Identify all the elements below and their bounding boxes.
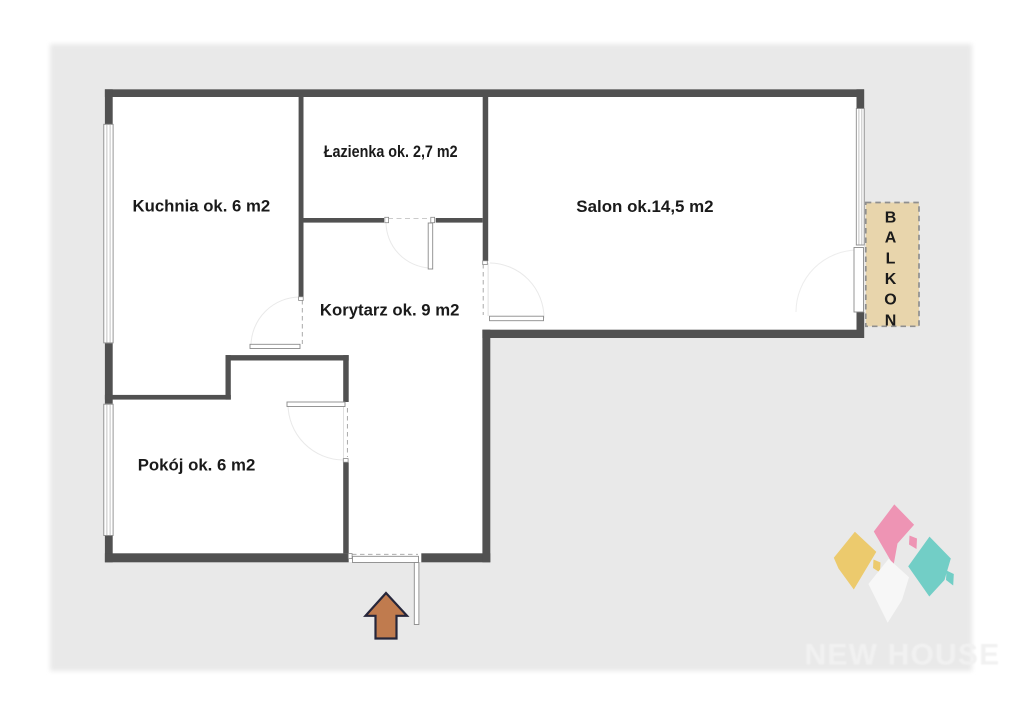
svg-text:A: A bbox=[885, 230, 897, 247]
svg-text:K: K bbox=[885, 271, 897, 288]
svg-text:B: B bbox=[885, 209, 897, 226]
svg-text:L: L bbox=[886, 250, 896, 267]
svg-text:Kuchnia ok. 6 m2: Kuchnia ok. 6 m2 bbox=[133, 197, 271, 216]
svg-text:Łazienka ok. 2,7 m2: Łazienka ok. 2,7 m2 bbox=[324, 142, 458, 161]
svg-text:N: N bbox=[885, 312, 897, 329]
svg-text:NEW HOUSE: NEW HOUSE bbox=[805, 639, 1001, 672]
svg-text:Salon ok.14,5 m2: Salon ok.14,5 m2 bbox=[576, 197, 713, 216]
svg-text:Pokój ok. 6 m2: Pokój ok. 6 m2 bbox=[138, 456, 256, 475]
svg-text:O: O bbox=[884, 292, 896, 309]
svg-text:Korytarz ok. 9 m2: Korytarz ok. 9 m2 bbox=[320, 301, 460, 320]
